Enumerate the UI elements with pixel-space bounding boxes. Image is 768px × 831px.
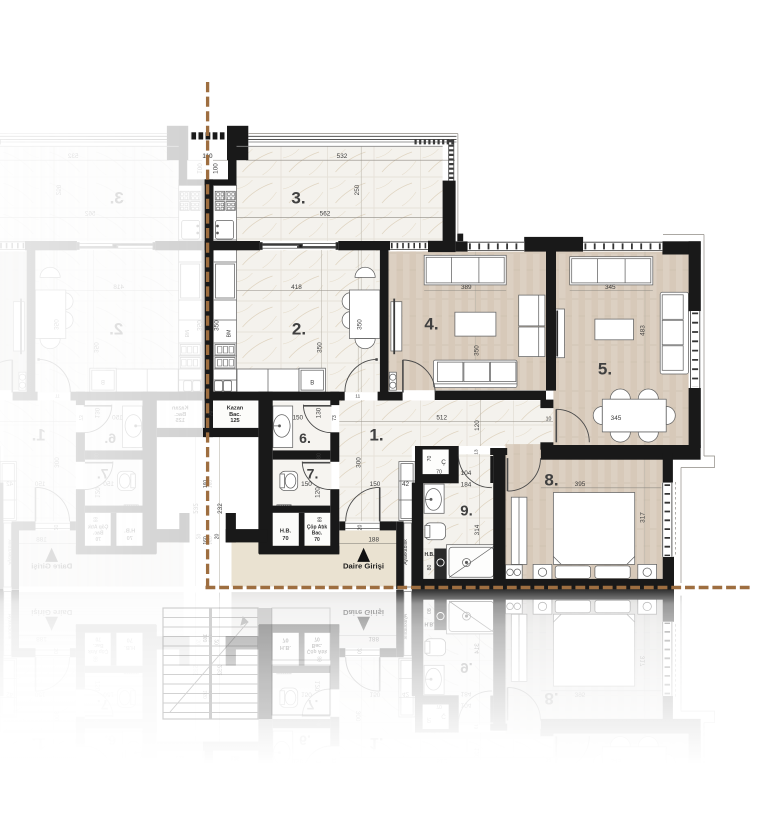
svg-text:3.: 3. [291,189,305,208]
svg-text:70: 70 [282,536,288,542]
svg-text:150: 150 [292,414,303,421]
svg-text:188: 188 [368,537,379,544]
svg-text:8.: 8. [544,471,558,490]
svg-text:Bac.: Bac. [229,412,241,418]
svg-text:9.: 9. [460,503,473,520]
svg-text:20: 20 [357,525,363,531]
svg-text:314: 314 [474,524,481,535]
svg-text:1.: 1. [369,426,383,445]
svg-text:73: 73 [332,415,338,421]
svg-text:BM: BM [226,329,232,338]
svg-text:7.: 7. [307,466,319,482]
svg-text:2.: 2. [292,320,306,339]
svg-text:350: 350 [356,319,363,330]
svg-text:80: 80 [427,565,433,571]
svg-text:70: 70 [436,470,442,476]
svg-text:42: 42 [402,481,410,488]
svg-text:350: 350 [213,320,220,331]
svg-text:125: 125 [230,418,239,424]
svg-text:Bac.: Bac. [312,531,323,537]
svg-text:130: 130 [315,407,322,418]
svg-text:350: 350 [316,342,323,353]
svg-text:532: 532 [337,153,348,160]
svg-text:120: 120 [474,420,481,431]
svg-text:317: 317 [640,512,647,523]
svg-text:120: 120 [315,487,322,498]
svg-text:Kazan: Kazan [227,406,244,412]
svg-text:418: 418 [291,284,302,291]
svg-text:345: 345 [605,284,616,291]
svg-text:483: 483 [640,325,647,336]
svg-text:Ayakkabılık: Ayakkabılık [403,539,409,565]
svg-text:13: 13 [473,449,478,455]
svg-text:232: 232 [217,503,224,514]
svg-text:6.: 6. [299,430,311,446]
svg-text:70: 70 [314,537,320,543]
svg-text:80: 80 [317,453,323,459]
svg-text:150: 150 [370,481,381,488]
svg-text:70: 70 [427,456,433,462]
svg-text:H.B.: H.B. [425,552,436,558]
svg-text:H.B.: H.B. [280,529,292,535]
svg-text:350: 350 [474,345,481,356]
svg-text:11: 11 [355,394,360,399]
svg-text:395: 395 [575,481,586,488]
svg-text:150: 150 [301,481,312,488]
svg-text:100: 100 [213,163,220,174]
svg-text:Ç: Ç [441,459,446,466]
svg-text:Daire Girişi: Daire Girişi [343,562,384,571]
svg-text:300: 300 [356,457,363,468]
svg-text:10: 10 [546,416,552,422]
svg-text:20: 20 [215,534,221,540]
svg-text:4.: 4. [424,315,438,334]
svg-text:345: 345 [611,415,622,422]
svg-text:5.: 5. [598,360,612,379]
svg-text:104: 104 [461,470,472,477]
svg-text:389: 389 [461,284,472,291]
svg-text:512: 512 [436,415,447,422]
svg-text:89: 89 [318,517,324,523]
svg-text:562: 562 [320,211,331,218]
svg-text:B: B [310,381,314,387]
svg-text:250: 250 [354,184,361,195]
svg-text:184: 184 [461,482,472,489]
